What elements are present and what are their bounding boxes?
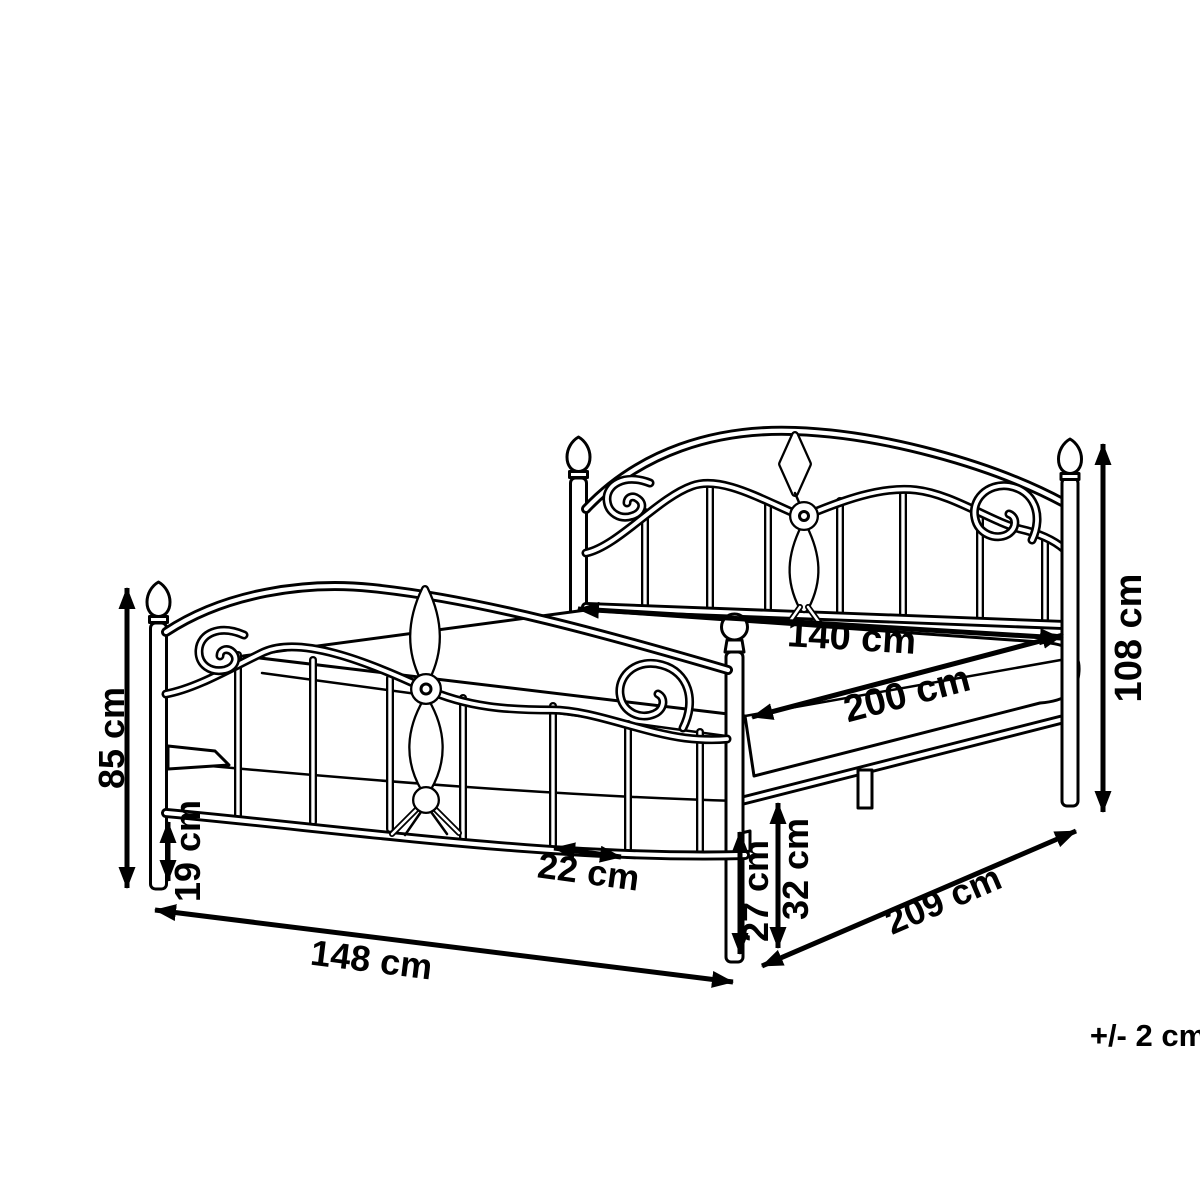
headboard-left-finial: [567, 437, 590, 478]
headboard-right-post: [1062, 478, 1078, 806]
footboard-bottom-rail: [166, 813, 745, 856]
footboard-left-post: [151, 623, 167, 889]
footboard-left-finial: [147, 582, 170, 623]
slat-bracket: [168, 746, 229, 769]
bed-dimension-diagram: 85 cm 19 cm 148 cm 22 cm 27 cm 32 cm 209…: [0, 0, 1200, 1200]
tolerance-note: +/- 2 cm: [1090, 1018, 1200, 1053]
diagram-canvas: 85 cm 19 cm 148 cm 22 cm 27 cm 32 cm 209…: [0, 0, 1200, 1200]
dim-label-headboard-height: 108 cm: [1108, 574, 1150, 703]
dim-label-overall-length: 209 cm: [879, 857, 1007, 943]
footboard-inner-rail: [167, 762, 738, 801]
headboard-center-motif: [782, 435, 821, 627]
dim-label-ground-clearance: 19 cm: [167, 800, 208, 902]
dim-label-rail-clearance: 27 cm: [735, 840, 776, 942]
support-leg: [858, 770, 872, 808]
dim-label-footboard-height: 85 cm: [91, 687, 132, 789]
dim-line-148: [155, 910, 733, 982]
headboard-right-finial: [1059, 439, 1082, 480]
dim-label-headboard-width: 140 cm: [786, 613, 917, 663]
footboard-center-motif: [392, 589, 459, 835]
dim-label-frame-height: 32 cm: [775, 818, 816, 920]
